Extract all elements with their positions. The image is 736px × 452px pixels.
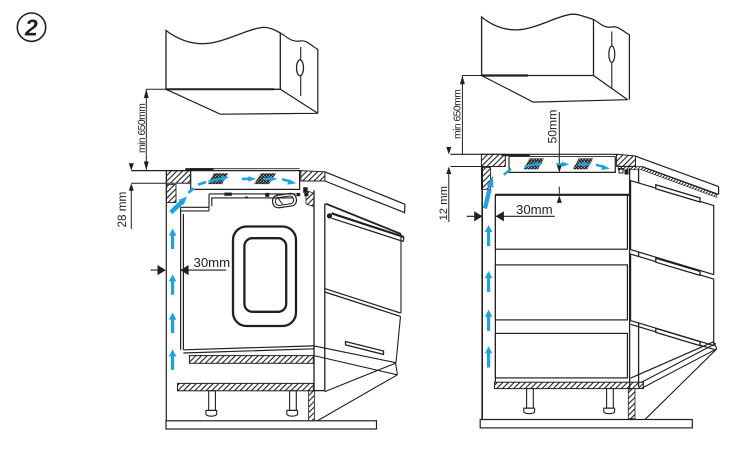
- svg-text:12 mm: 12 mm: [438, 186, 450, 221]
- svg-text:50mm: 50mm: [545, 110, 559, 144]
- svg-text:30mm: 30mm: [194, 255, 231, 270]
- svg-text:28 mm: 28 mm: [116, 192, 129, 228]
- svg-text:min 650mm: min 650mm: [137, 104, 148, 153]
- svg-text:min 650mm: min 650mm: [453, 90, 464, 139]
- svg-text:30mm: 30mm: [516, 202, 553, 217]
- svg-text:2: 2: [24, 15, 38, 41]
